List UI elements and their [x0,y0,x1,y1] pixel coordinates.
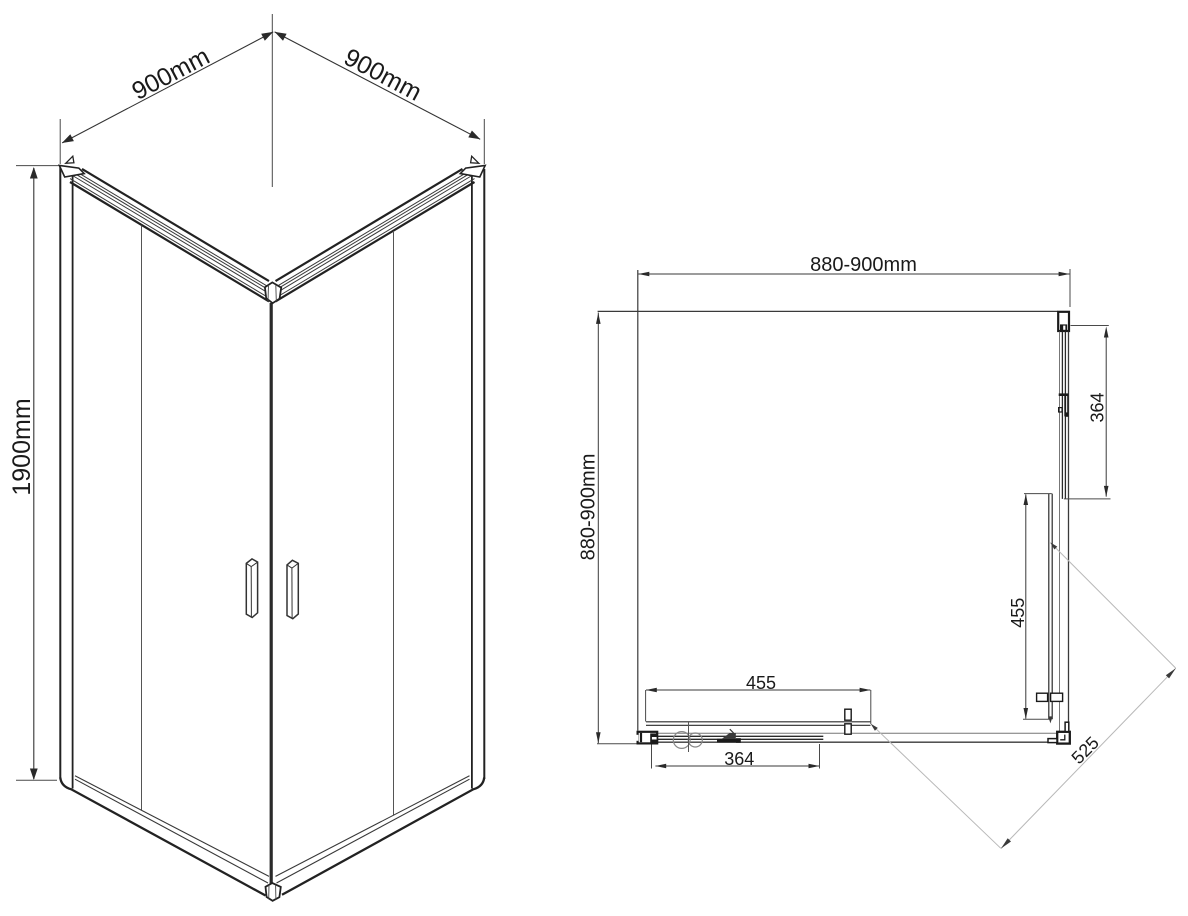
svg-text:880-900mm: 880-900mm [578,454,600,561]
svg-text:455: 455 [746,673,776,693]
svg-text:364: 364 [724,749,754,769]
svg-text:880-900mm: 880-900mm [810,254,917,276]
svg-text:455: 455 [1008,598,1028,628]
svg-text:1900mm: 1900mm [8,398,36,495]
svg-text:364: 364 [1088,392,1108,422]
